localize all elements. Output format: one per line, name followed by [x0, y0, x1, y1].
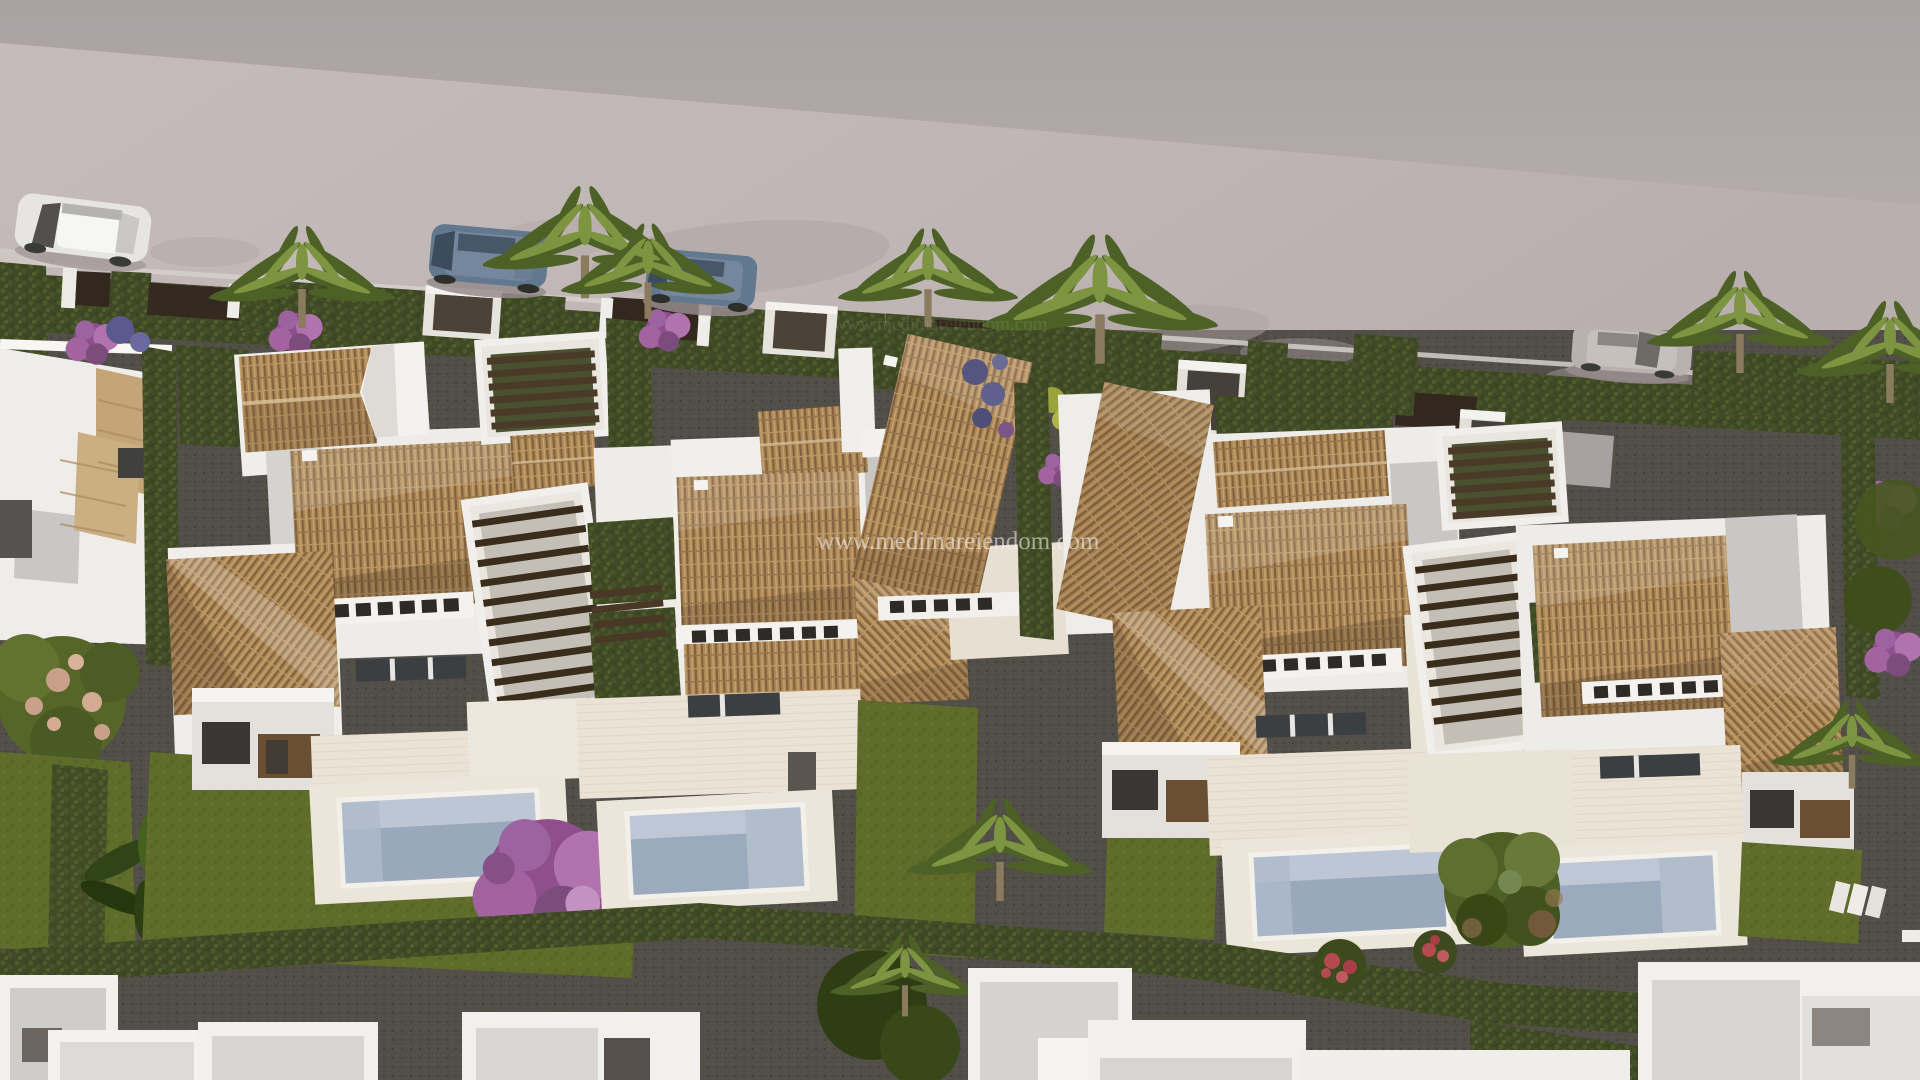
svg-text:www.medimareiendom.com: www.medimareiendom.com: [816, 528, 1100, 555]
svg-text:www.medimareiendom.com: www.medimareiendom.com: [832, 314, 1047, 335]
